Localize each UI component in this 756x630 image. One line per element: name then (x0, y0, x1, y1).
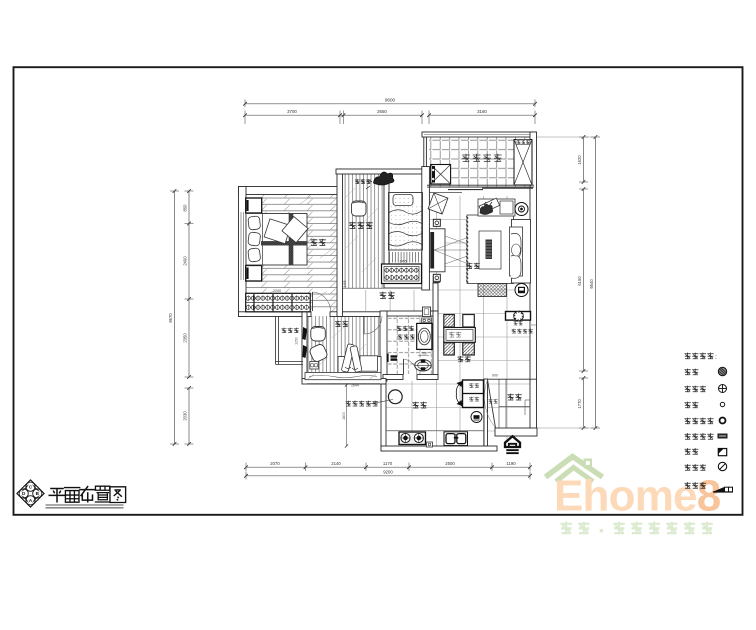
svg-text:2070: 2070 (270, 461, 280, 466)
svg-text:2030: 2030 (183, 411, 188, 421)
svg-text:1600: 1600 (342, 412, 346, 420)
svg-text:900: 900 (492, 374, 498, 378)
svg-text:2140: 2140 (331, 461, 341, 466)
svg-text:1190: 1190 (506, 461, 516, 466)
svg-text:1170: 1170 (383, 461, 393, 466)
svg-text:2400: 2400 (183, 256, 188, 266)
svg-text:850: 850 (183, 204, 188, 212)
svg-text:8670: 8670 (168, 313, 173, 323)
svg-text:9540: 9540 (589, 279, 594, 289)
svg-text:6150: 6150 (577, 276, 582, 286)
svg-text:1620: 1620 (577, 155, 582, 165)
svg-text:9200: 9200 (383, 470, 393, 475)
svg-text:2350: 2350 (183, 333, 188, 343)
svg-text:3700: 3700 (287, 109, 297, 114)
svg-text:1050: 1050 (295, 337, 299, 345)
svg-text:760: 760 (421, 351, 427, 355)
svg-text:2200: 2200 (273, 289, 281, 293)
svg-text:1455: 1455 (399, 260, 407, 264)
svg-text:2644: 2644 (351, 384, 359, 388)
svg-text:Ehome8: Ehome8 (554, 472, 721, 521)
svg-text:2650: 2650 (377, 109, 387, 114)
svg-text:1770: 1770 (577, 399, 582, 409)
svg-text:2500: 2500 (445, 461, 455, 466)
svg-text:1455: 1455 (343, 280, 347, 287)
svg-text::: : (715, 354, 717, 361)
svg-text:3160: 3160 (477, 109, 487, 114)
svg-text:9600: 9600 (385, 98, 396, 103)
